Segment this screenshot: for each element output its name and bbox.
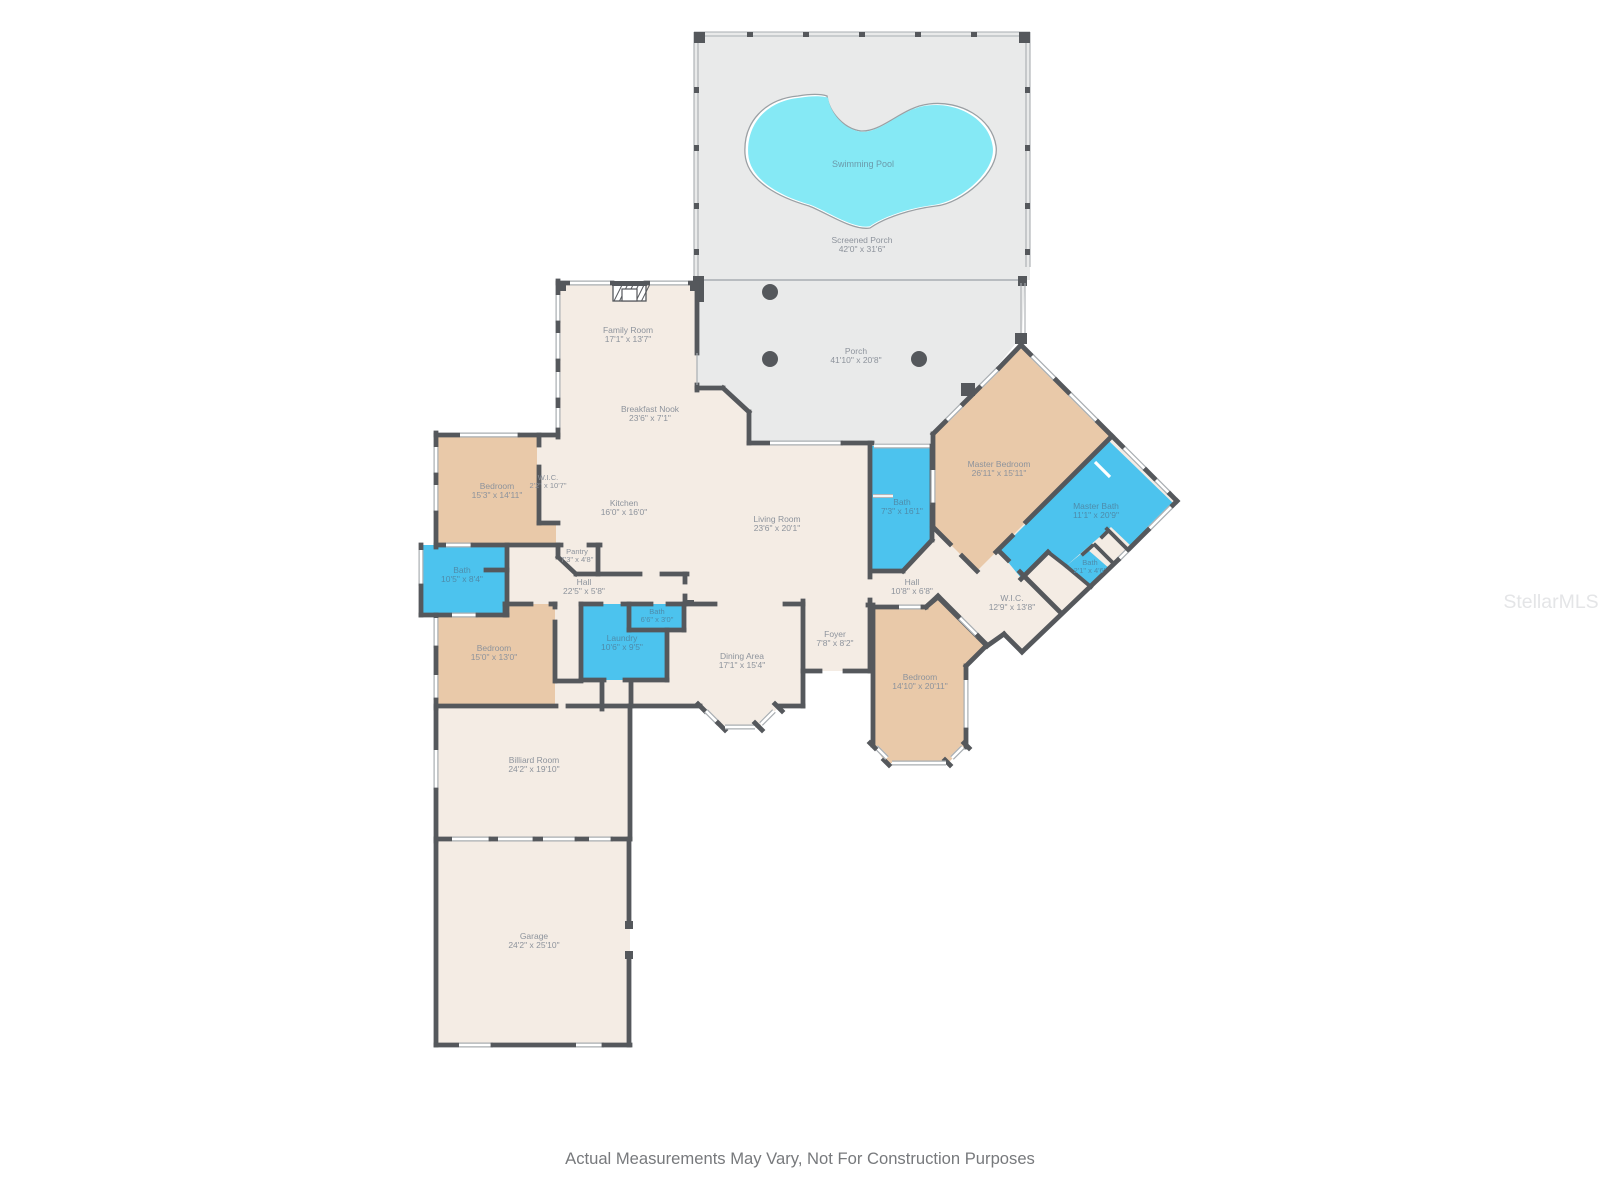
svg-text:Swimming Pool: Swimming Pool: [832, 159, 894, 169]
svg-text:23'6" x 20'1": 23'6" x 20'1": [754, 523, 801, 533]
svg-text:11'1" x 20'9": 11'1" x 20'9": [1073, 510, 1119, 520]
svg-text:22'5" x 5'8": 22'5" x 5'8": [563, 586, 605, 596]
svg-text:12'9" x 13'8": 12'9" x 13'8": [989, 602, 1036, 612]
svg-text:7'8" x 8'2": 7'8" x 8'2": [816, 638, 853, 648]
svg-text:2'1" x 4'6": 2'1" x 4'6": [1074, 566, 1107, 575]
svg-text:7'3" x 16'1": 7'3" x 16'1": [881, 506, 923, 516]
svg-text:41'10" x 20'8": 41'10" x 20'8": [830, 355, 881, 365]
svg-text:10'8" x 6'8": 10'8" x 6'8": [891, 586, 933, 596]
svg-text:2'2" x 10'7": 2'2" x 10'7": [530, 481, 567, 490]
svg-text:24'2" x 19'10": 24'2" x 19'10": [508, 764, 559, 774]
svg-text:17'1" x 15'4": 17'1" x 15'4": [719, 660, 766, 670]
svg-text:23'6" x 7'1": 23'6" x 7'1": [629, 413, 671, 423]
svg-text:17'1" x 13'7": 17'1" x 13'7": [605, 334, 652, 344]
svg-text:24'2" x 25'10": 24'2" x 25'10": [508, 940, 559, 950]
svg-text:15'3" x 14'11": 15'3" x 14'11": [472, 490, 523, 500]
svg-text:16'0" x 16'0": 16'0" x 16'0": [601, 507, 648, 517]
svg-text:7'3" x 4'8": 7'3" x 4'8": [561, 555, 594, 564]
svg-text:15'0" x 13'0": 15'0" x 13'0": [471, 652, 518, 662]
svg-text:6'6" x 3'0": 6'6" x 3'0": [641, 615, 674, 624]
svg-text:42'0" x 31'6": 42'0" x 31'6": [839, 244, 886, 254]
svg-text:10'6" x 9'5": 10'6" x 9'5": [601, 642, 643, 652]
svg-text:10'5" x 8'4": 10'5" x 8'4": [441, 574, 483, 584]
svg-text:StellarMLS: StellarMLS: [1503, 591, 1598, 613]
svg-text:26'11" x 15'11": 26'11" x 15'11": [972, 468, 1027, 478]
svg-text:Actual Measurements May Vary,: Actual Measurements May Vary, Not For Co…: [565, 1149, 1035, 1168]
svg-text:14'10" x 20'11": 14'10" x 20'11": [892, 681, 947, 691]
